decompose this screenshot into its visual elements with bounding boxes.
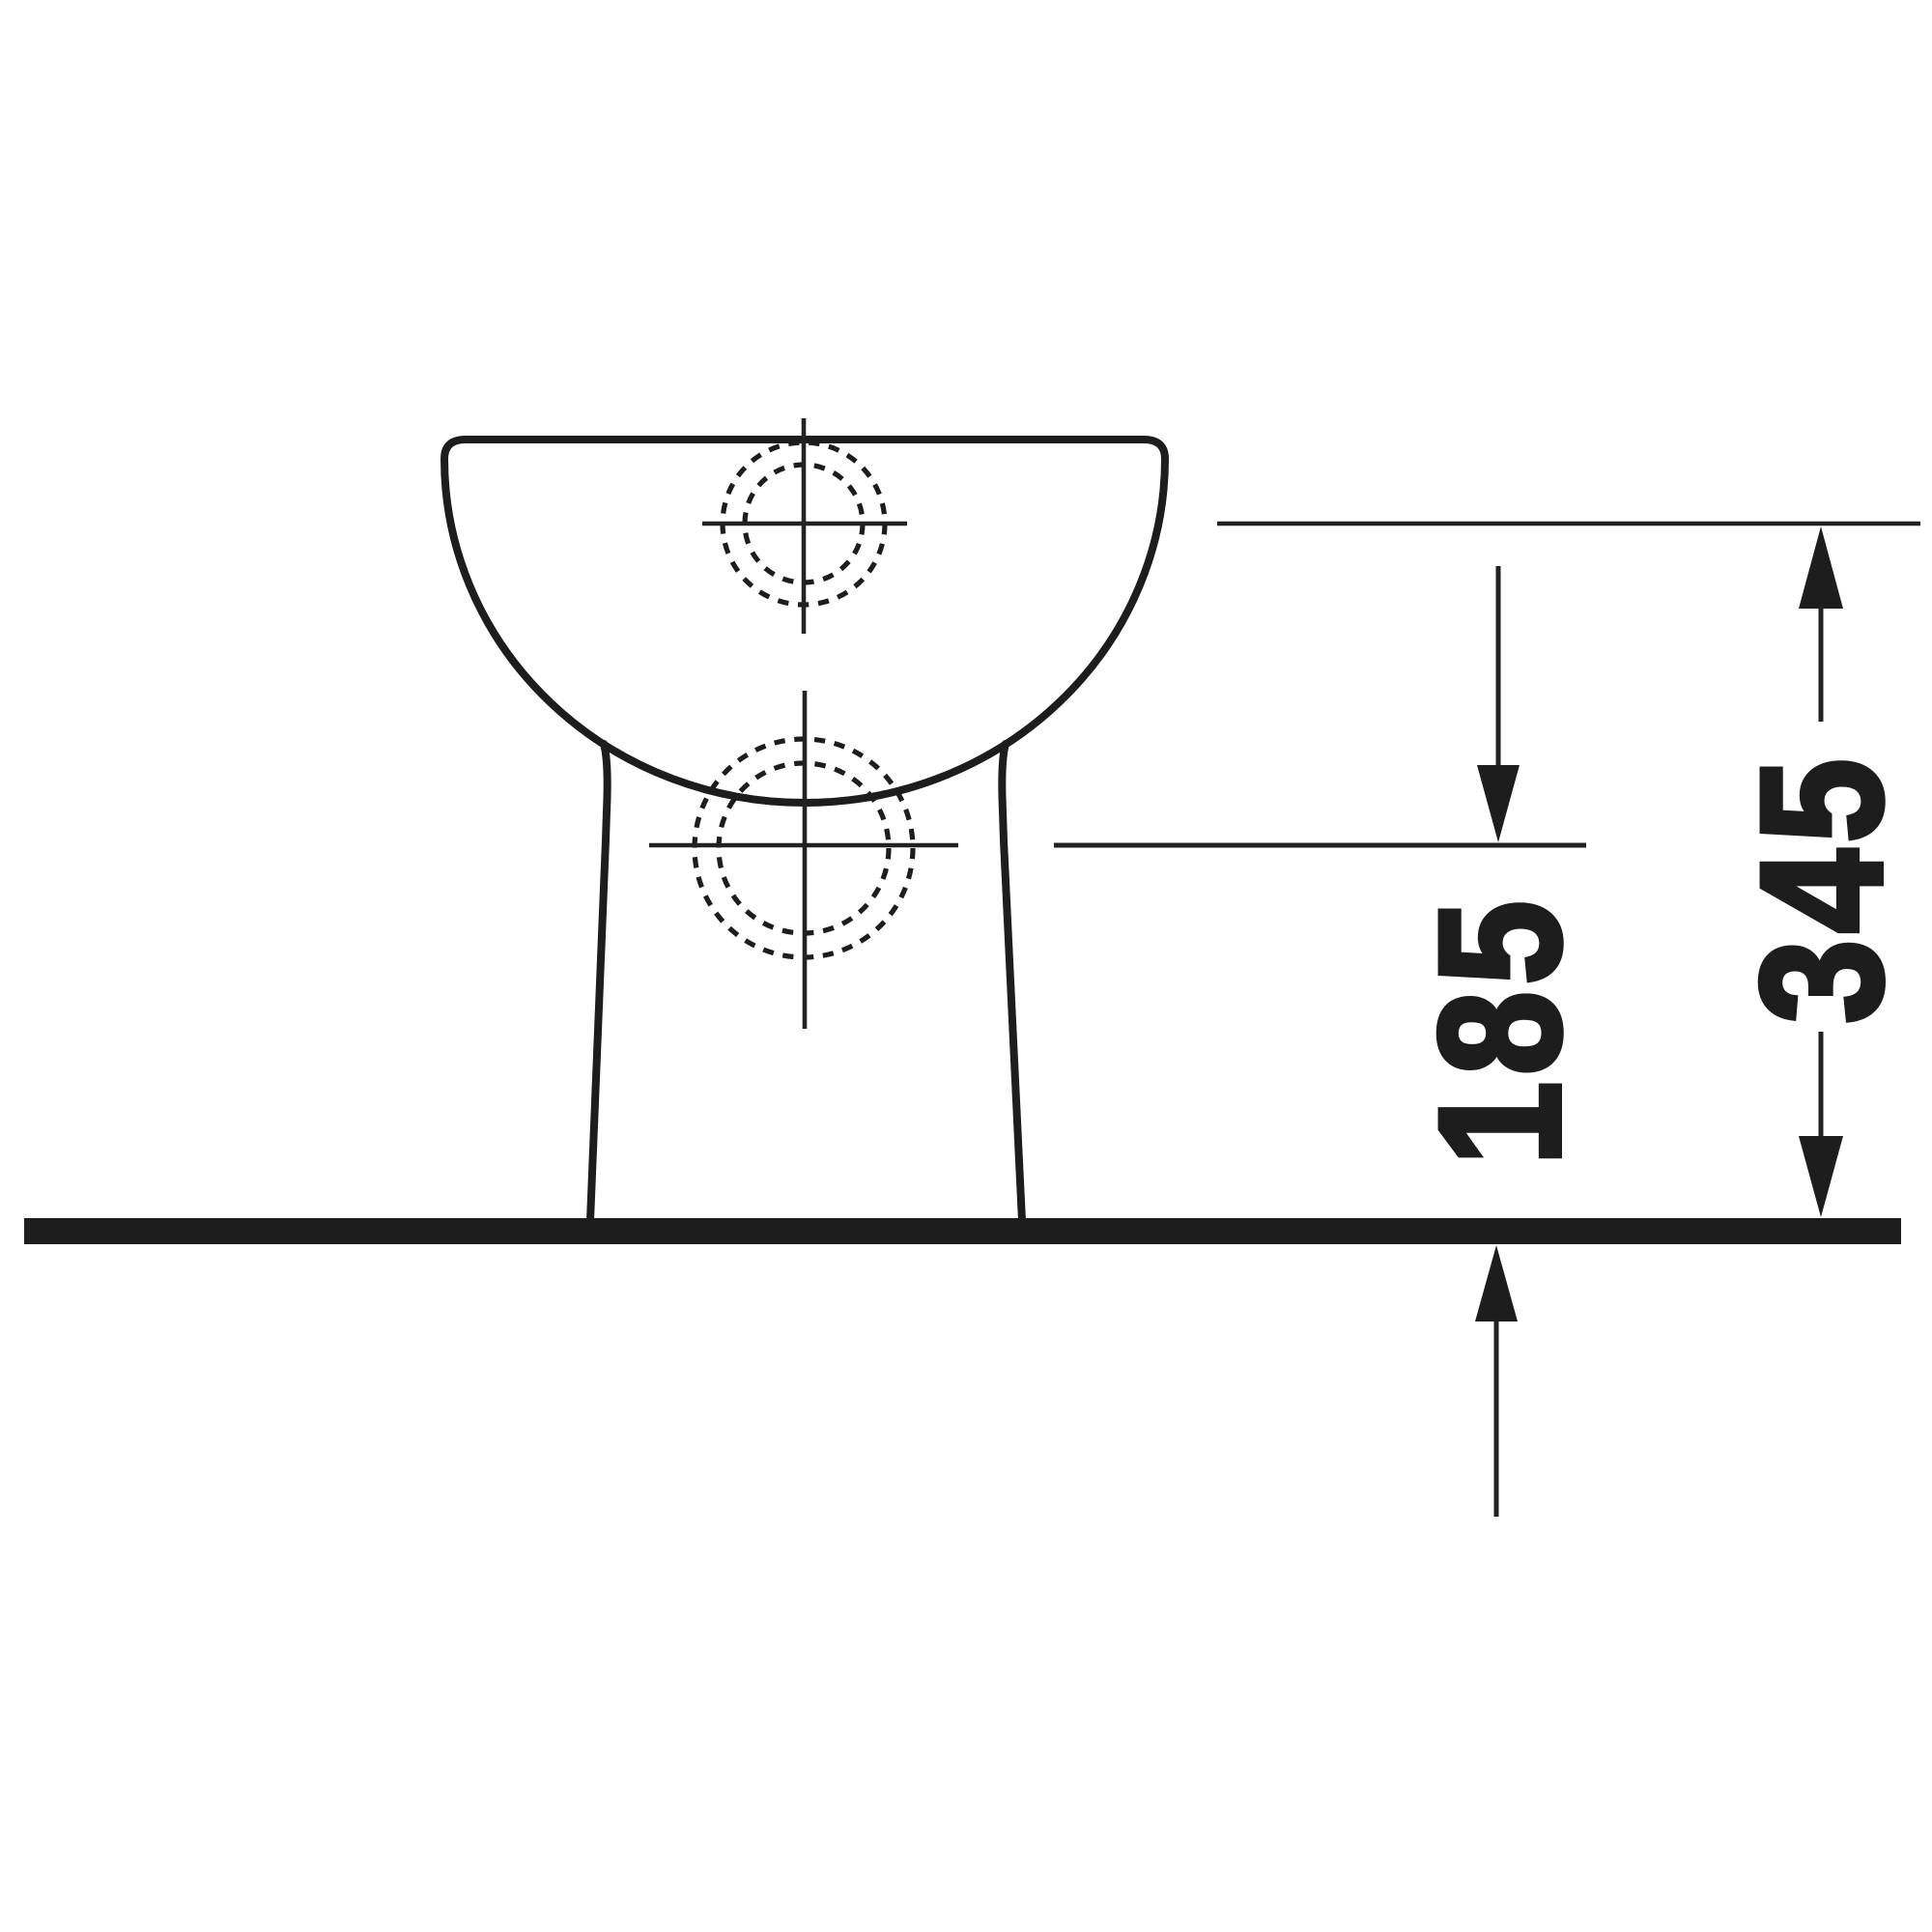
svg-text:345: 345 [1726, 753, 1918, 1024]
svg-text:185: 185 [1405, 895, 1596, 1166]
